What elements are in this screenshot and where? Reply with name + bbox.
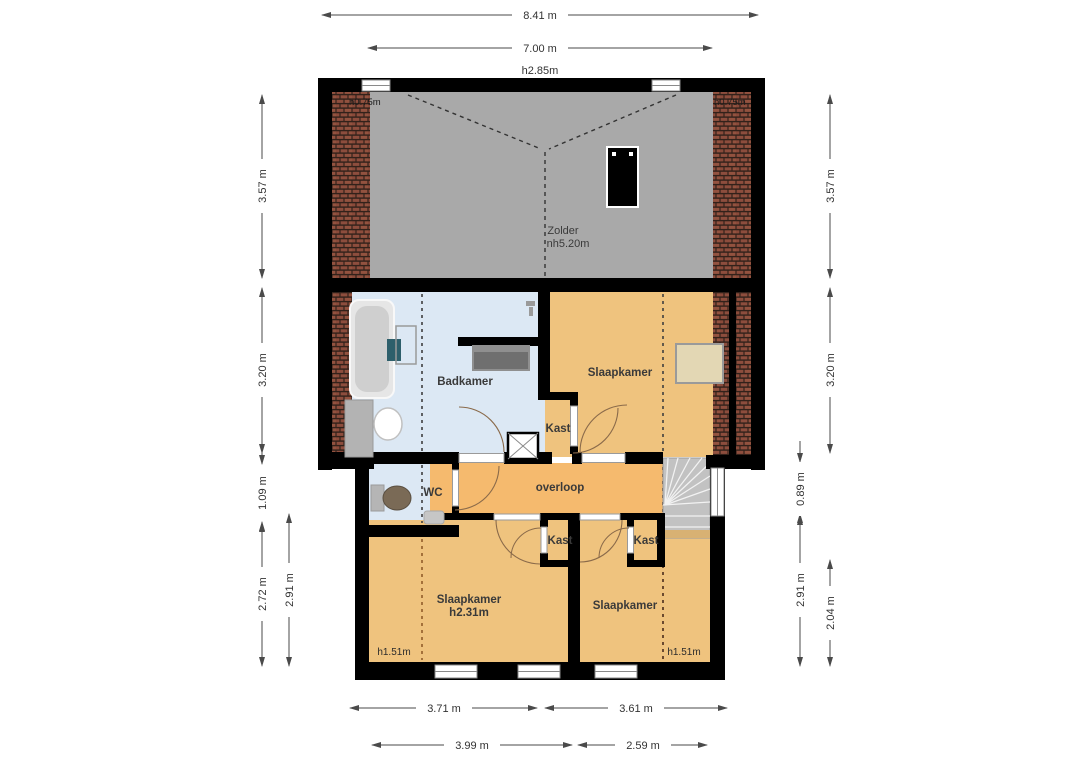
dim-right-inner-1: 0.89 m <box>792 462 807 516</box>
dim-top-inner: 7.00 m <box>512 40 568 55</box>
wall-outer-left-upper <box>318 78 332 470</box>
dim-right-inner-2: 2.91 m <box>792 563 807 617</box>
badkamer-toilet-icon <box>374 408 402 440</box>
brick-divider-wall <box>729 292 736 457</box>
dim-left-2: 3.20 m <box>254 343 269 397</box>
window-attic-right <box>652 80 680 91</box>
svg-text:2.72 m: 2.72 m <box>257 577 269 611</box>
dim-left-4: 2.72 m <box>254 567 269 621</box>
window-bottom-1 <box>435 665 477 678</box>
stairs <box>663 458 710 538</box>
brick-strip-attic-left <box>332 92 370 284</box>
chimney-icon <box>607 147 638 207</box>
wall-attic-bottom <box>318 278 765 292</box>
svg-text:3.20 m: 3.20 m <box>257 353 269 387</box>
wc-label: WC <box>423 487 442 499</box>
dim-right-2: 3.20 m <box>822 343 837 397</box>
overloop-label: overloop <box>536 482 585 494</box>
wc-sink-icon <box>424 511 444 524</box>
vanity-counter-icon <box>472 345 530 371</box>
floorplan-canvas: Zolder nh5.20m Badkamer Slaapkamer Kast … <box>0 0 1080 764</box>
svg-text:2.59 m: 2.59 m <box>626 740 660 752</box>
dim-bottom-4: 2.59 m <box>615 737 671 752</box>
wall-kast-left-bottom <box>540 560 580 567</box>
dim-left-1: 3.57 m <box>254 159 269 213</box>
brick-strip-attic-right <box>713 92 751 284</box>
svg-text:2.91 m: 2.91 m <box>284 573 296 607</box>
kast-left-label: Kast <box>548 535 573 547</box>
svg-text:3.20 m: 3.20 m <box>825 353 837 387</box>
shaft-icon <box>508 433 538 459</box>
svg-text:1.09 m: 1.09 m <box>257 476 269 510</box>
wall-overloop-top-right <box>625 452 663 464</box>
kast-right-label: Kast <box>634 535 659 547</box>
wall-outer-right-upper <box>751 78 765 470</box>
wall-outer-left-lower <box>355 455 369 680</box>
dim-left-3: 1.09 m <box>254 466 269 520</box>
height-label-top: h2.85m <box>522 65 559 77</box>
slaapkamer-mid-label: Slaapkamer <box>588 367 653 379</box>
window-bottom-2 <box>518 665 560 678</box>
zolder-label: Zolder <box>547 225 579 237</box>
zolder-height-label: nh5.20m <box>547 238 590 250</box>
bed-icon <box>676 344 723 383</box>
wall-overloop-top-post <box>572 452 582 464</box>
svg-text:2.91 m: 2.91 m <box>795 573 807 607</box>
wall-kast-left-post-top <box>540 520 548 527</box>
dim-bottom-2: 3.61 m <box>608 700 664 715</box>
bottom-left-height-label: h1.51m <box>377 647 410 658</box>
svg-text:3.99 m: 3.99 m <box>455 740 489 752</box>
wall-kast-right-post-top <box>627 520 634 527</box>
window-stairwell <box>711 468 724 516</box>
dim-left-inner: 2.91 m <box>281 563 296 617</box>
window-bottom-3 <box>595 665 637 678</box>
svg-text:3.57 m: 3.57 m <box>825 169 837 203</box>
svg-text:0.89 m: 0.89 m <box>795 472 807 506</box>
svg-text:7.00 m: 7.00 m <box>523 43 557 55</box>
wall-wc-door-post-bottom <box>452 506 459 516</box>
dim-right-3: 2.04 m <box>822 586 837 640</box>
stairs-bottom-step <box>663 530 710 538</box>
badkamer-cabinet-icon <box>345 400 373 457</box>
svg-text:3.57 m: 3.57 m <box>257 169 269 203</box>
window-attic-left <box>362 80 390 91</box>
slaapkamer-left-height-label: h2.31m <box>449 607 489 619</box>
slaapkamer-right-label: Slaapkamer <box>593 600 658 612</box>
wall-wc-door-post-top <box>452 463 459 470</box>
wall-overloop-bottom-2 <box>540 513 580 520</box>
slaapkamer-left-floor <box>368 520 570 664</box>
wc-toilet-icon <box>371 485 411 511</box>
dim-top-outer: 8.41 m <box>512 7 568 22</box>
svg-text:3.61 m: 3.61 m <box>619 703 653 715</box>
wall-overloop-bottom-3 <box>620 513 663 520</box>
slaapkamer-left-label: Slaapkamer <box>437 594 502 606</box>
wall-wc-bottom <box>355 525 459 537</box>
dim-right-1: 3.57 m <box>822 159 837 213</box>
badkamer-label: Badkamer <box>437 376 493 388</box>
svg-text:3.71 m: 3.71 m <box>427 703 461 715</box>
svg-text:8.41 m: 8.41 m <box>523 10 557 22</box>
zolder-floor <box>332 92 751 284</box>
attic-right-height-label: h0.75m <box>714 97 746 108</box>
floorplan-svg: Zolder nh5.20m Badkamer Slaapkamer Kast … <box>0 0 1080 764</box>
dim-bottom-3: 3.99 m <box>444 737 500 752</box>
wall-stub-badkamer <box>458 337 538 346</box>
svg-text:2.04 m: 2.04 m <box>825 596 837 630</box>
attic-left-height-label: h0.75m <box>349 97 381 108</box>
bottom-right-height-label: h1.51m <box>667 647 700 658</box>
dim-bottom-1: 3.71 m <box>416 700 472 715</box>
kast-mid-label: Kast <box>546 423 571 435</box>
wall-badkamer-slaapkamer <box>538 292 550 400</box>
bathtub-faucet-icon <box>387 339 401 361</box>
wall-kast-mid-post-top <box>570 398 578 406</box>
